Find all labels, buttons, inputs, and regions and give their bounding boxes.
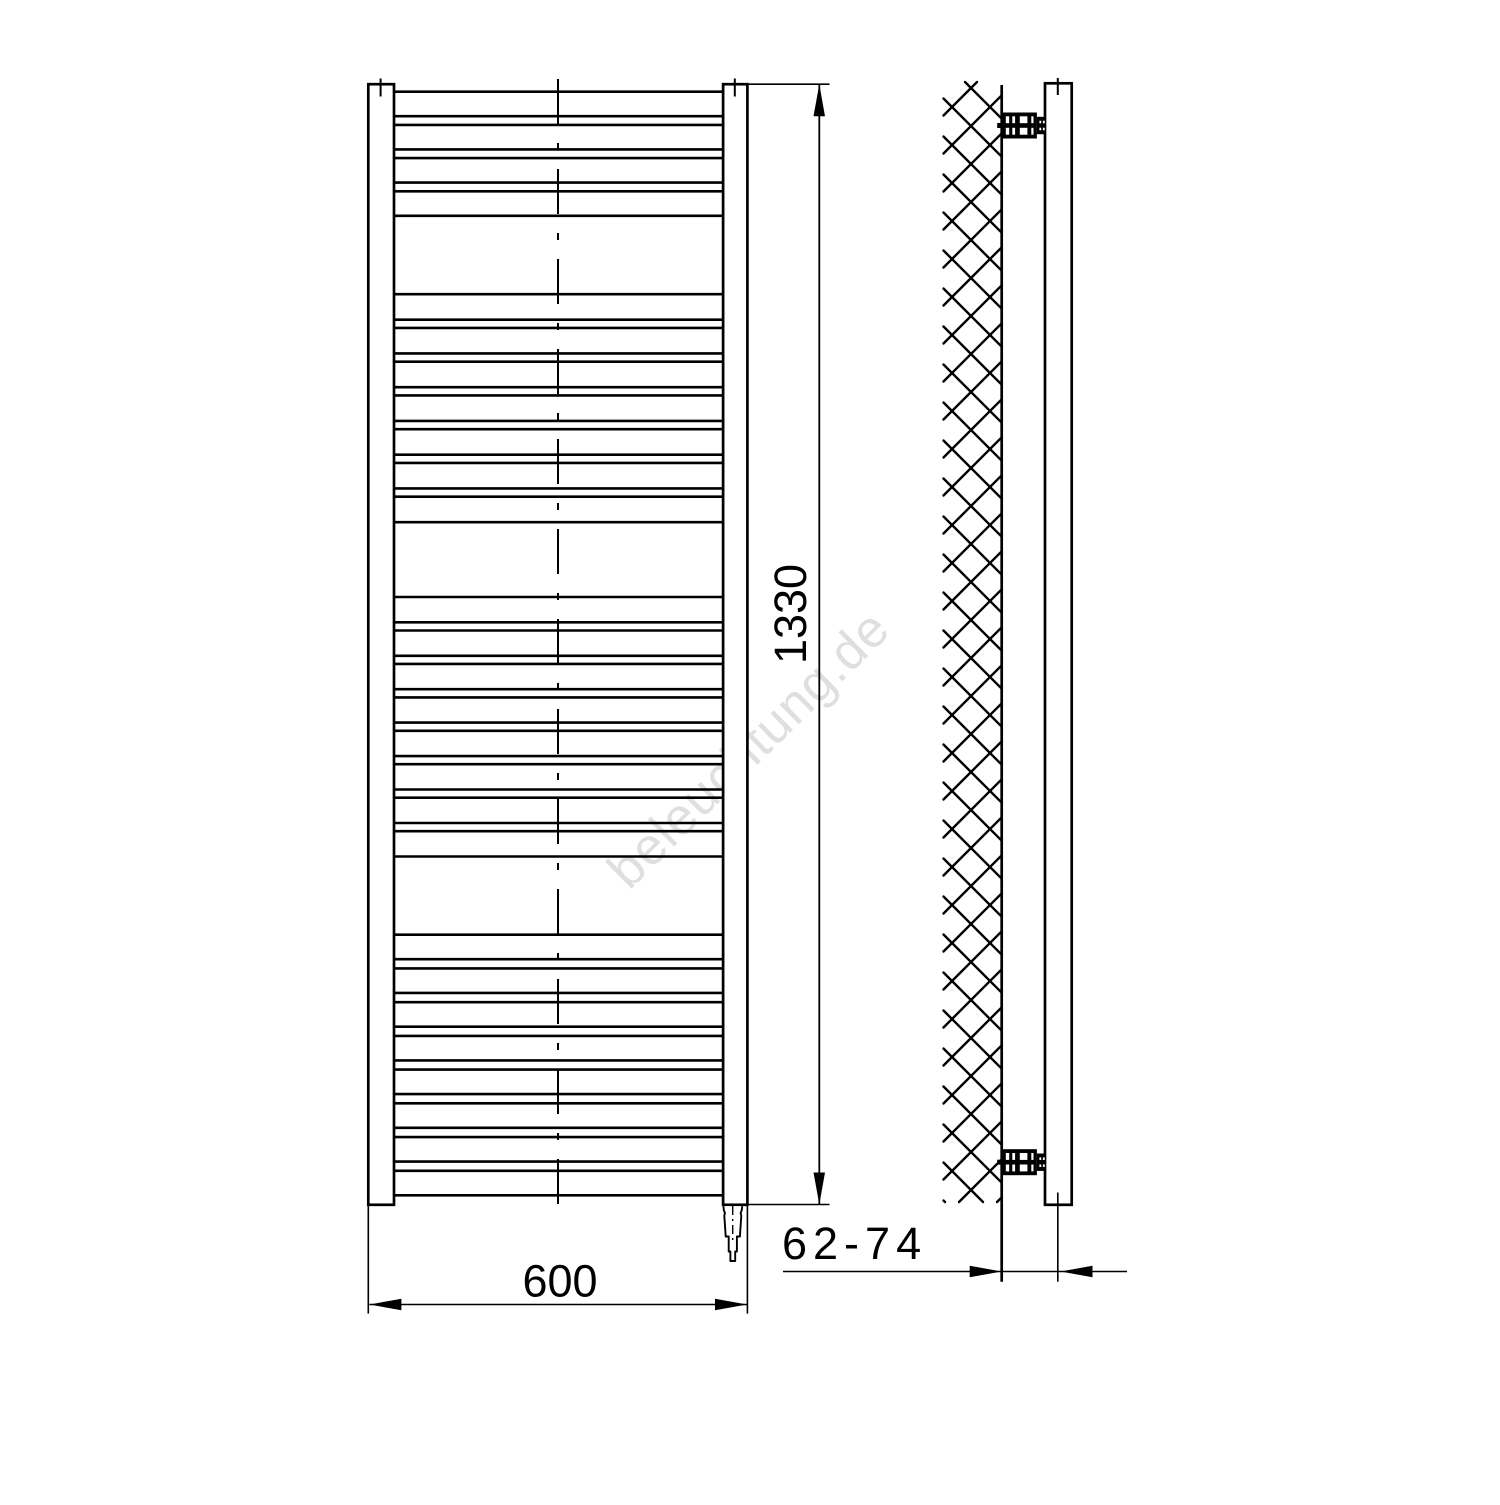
svg-text:1330: 1330	[765, 564, 816, 664]
svg-text:62-74: 62-74	[782, 1218, 927, 1269]
svg-text:600: 600	[522, 1256, 597, 1307]
